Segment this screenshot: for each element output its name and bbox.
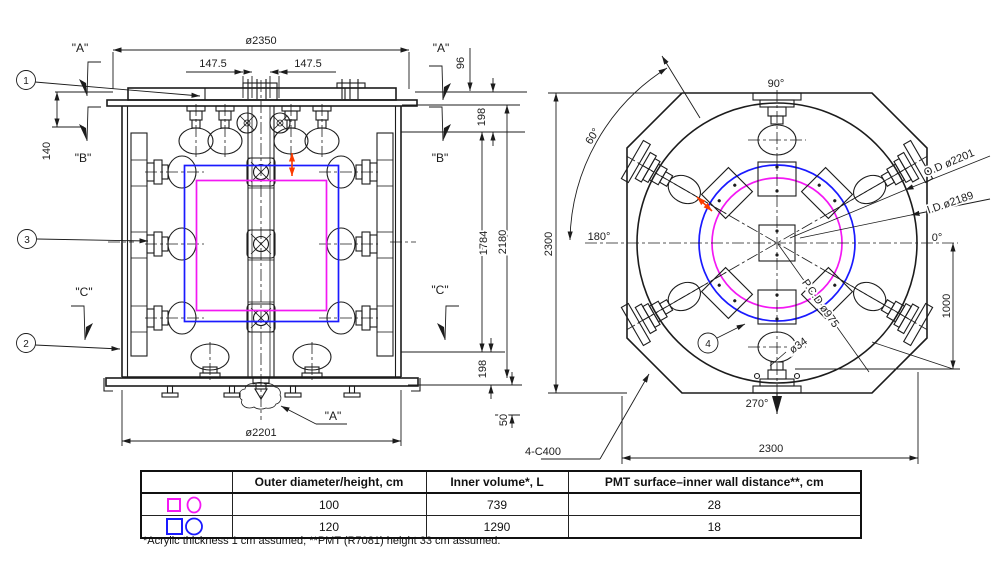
- symbol-magenta: [141, 493, 232, 516]
- section-c-left: "C": [75, 285, 92, 299]
- header-inner-volume: Inner volume*, L: [426, 471, 568, 493]
- central-column: [247, 80, 275, 420]
- section-a-bottom: "A": [325, 409, 342, 423]
- dim-1000: 1000: [941, 294, 953, 318]
- dim-top-diameter: ø2350: [245, 35, 276, 47]
- svg-text:3: 3: [24, 235, 30, 246]
- dim-offset-left: 147.5: [199, 58, 227, 70]
- dim-2300-bottom: 2300: [759, 443, 783, 455]
- balloon-3: 3: [18, 230, 149, 249]
- section-b-left: "B": [75, 151, 92, 165]
- top-pmts: [179, 104, 339, 157]
- label-hole-34: ø34: [787, 335, 809, 356]
- table-row-magenta: 100 739 28: [141, 493, 861, 516]
- section-a-top-left: "A": [72, 41, 89, 55]
- header-symbol: [141, 471, 232, 493]
- dim-bottom-diameter: ø2201: [245, 427, 276, 439]
- pmt-150: [616, 137, 737, 232]
- dim-2300-left: 2300: [543, 232, 555, 256]
- pmt-330: [817, 253, 938, 348]
- flange-face-left: [237, 113, 257, 133]
- svg-text:4: 4: [705, 339, 711, 350]
- dim-198-top: 198: [476, 108, 488, 126]
- pmt-30: [817, 137, 938, 232]
- blue-square-icon: [167, 519, 182, 534]
- balloon-2: 2: [17, 334, 121, 353]
- blue-symbols: [165, 517, 209, 536]
- dim-198-bottom: 198: [477, 360, 489, 378]
- section-b-right: "B": [432, 151, 449, 165]
- magenta-circle-icon: [187, 498, 200, 513]
- pmt-left-bottom: [145, 302, 204, 334]
- spec-table: Outer diameter/height, cm Inner volume*,…: [140, 470, 862, 539]
- angle-0: 0°: [932, 232, 943, 244]
- section-a-top-right: "A": [433, 41, 450, 55]
- right-view-dimensions: 90° 60° 180° 0° 270° O.D ø2201 I.D ø2189…: [525, 56, 990, 464]
- magenta-vessel-outline: [197, 181, 327, 311]
- left-view: ø2350 147.5 147.5 96 198 140 1784 2180: [17, 35, 528, 446]
- dim-96: 96: [455, 57, 467, 69]
- pmt-right-top: [319, 156, 378, 188]
- right-view: 90° 60° 180° 0° 270° O.D ø2201 I.D ø2189…: [525, 56, 990, 464]
- pmt-210: [616, 253, 737, 348]
- table-footnote: *Acrylic thickness 1 cm assumed; **PMT (…: [143, 535, 500, 547]
- pmt-left-top: [145, 156, 204, 188]
- cell-outer-100: 100: [232, 493, 426, 516]
- dim-2180: 2180: [497, 230, 509, 254]
- label-od: O.D ø2201: [922, 147, 976, 179]
- cell-volume-739: 739: [426, 493, 568, 516]
- table-header-row: Outer diameter/height, cm Inner volume*,…: [141, 471, 861, 493]
- svg-text:1: 1: [23, 76, 29, 87]
- angle-90: 90°: [768, 78, 785, 90]
- dim-50: 50: [498, 414, 510, 426]
- dim-offset-right: 147.5: [294, 58, 322, 70]
- tank-shell: [104, 106, 420, 391]
- cell-distance-28: 28: [568, 493, 861, 516]
- pmt-left-mid: [145, 228, 204, 260]
- header-pmt-distance: PMT surface–inner wall distance**, cm: [568, 471, 861, 493]
- section-c-right: "C": [431, 283, 448, 297]
- angle-180: 180°: [588, 231, 611, 243]
- balloon-4: 4: [698, 324, 745, 353]
- magenta-square-icon: [168, 499, 180, 511]
- cell-distance-18: 18: [568, 516, 861, 539]
- blue-circle-icon: [186, 519, 202, 535]
- angle-60: 60°: [583, 126, 602, 146]
- dim-1784: 1784: [478, 231, 490, 255]
- svg-text:2: 2: [23, 339, 29, 350]
- pmt-right-bottom: [319, 302, 378, 334]
- dim-140: 140: [41, 142, 53, 160]
- header-outer-diameter: Outer diameter/height, cm: [232, 471, 426, 493]
- angle-270: 270°: [746, 398, 769, 410]
- pmt-right-mid: [319, 228, 378, 260]
- label-id: I.D ø2189: [926, 190, 976, 217]
- label-chamfer: 4-C400: [525, 446, 561, 458]
- magenta-symbols: [165, 495, 209, 514]
- drawing-page: ø2350 147.5 147.5 96 198 140 1784 2180: [0, 0, 996, 561]
